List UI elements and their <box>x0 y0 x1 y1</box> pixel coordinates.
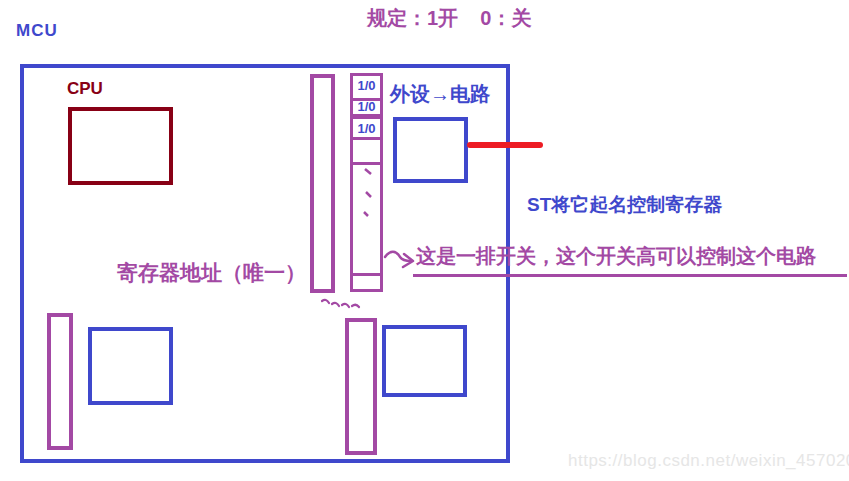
cell-divider <box>353 137 380 140</box>
cell-divider <box>353 273 380 276</box>
mcu-title-label: MCU <box>16 22 58 41</box>
rule-label: 规定：1开 0：关 <box>367 7 531 29</box>
squiggle-marks-icon <box>320 297 362 311</box>
ellipsis-dashes-icon <box>353 164 380 264</box>
cpu-label: CPU <box>67 80 103 99</box>
bottom-right-module-box <box>382 325 467 397</box>
peripheral-circuit-label: 外设→电路 <box>390 83 490 105</box>
note-underline <box>413 274 847 277</box>
cell-divider <box>353 114 380 119</box>
switch-bit-value: 1/0 <box>353 99 380 114</box>
diagram-canvas: MCU 规定：1开 0：关 CPU 1/0 1/0 1/0 外设→电路 ST将它… <box>0 0 849 481</box>
bottom-left-bus-rect <box>47 313 73 450</box>
switch-bit-value: 1/0 <box>353 121 380 136</box>
cpu-box <box>68 107 173 185</box>
bottom-right-bus-rect <box>345 318 377 455</box>
st-register-note: ST将它起名控制寄存器 <box>527 195 722 216</box>
switch-bit-value: 1/0 <box>353 78 380 93</box>
register-switch-column: 1/0 1/0 1/0 <box>350 73 383 292</box>
circuit-wire-line <box>467 142 543 148</box>
register-address-label: 寄存器地址（唯一） <box>117 261 306 284</box>
peripheral-box <box>393 117 468 183</box>
switch-row-note: 这是一排开关，这个开关高可以控制这个电路 <box>416 245 816 267</box>
curved-arrow-icon <box>382 246 418 270</box>
address-bus-rect <box>310 74 335 293</box>
bottom-left-module-box <box>88 327 173 405</box>
watermark-text: https://blog.csdn.net/weixin_45702091 <box>568 452 849 471</box>
